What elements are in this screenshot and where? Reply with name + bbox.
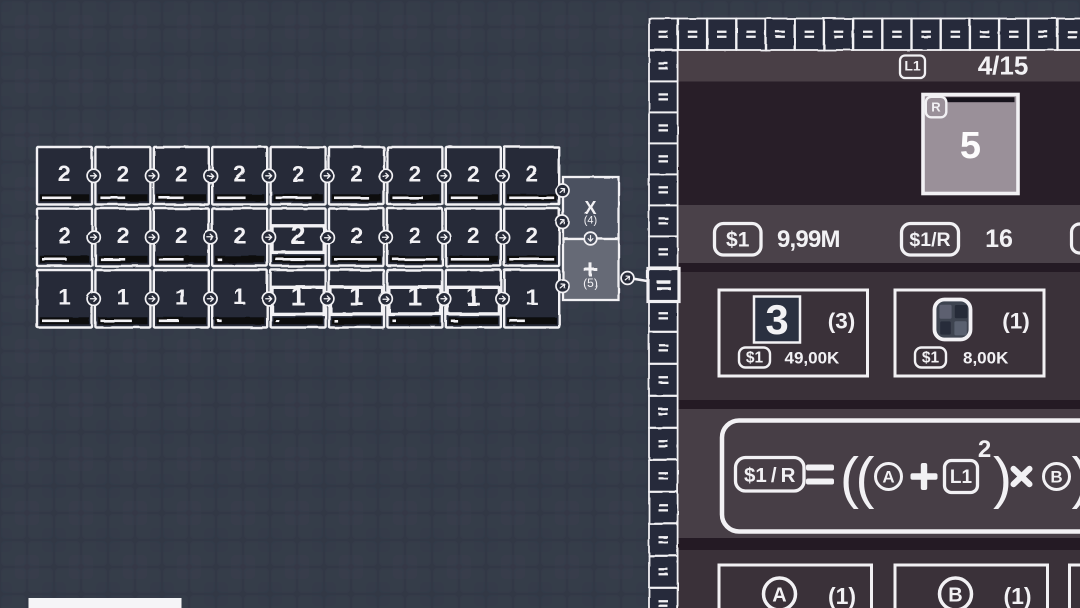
svg-text:2: 2 [117, 162, 130, 187]
svg-text:1: 1 [466, 282, 481, 312]
svg-text:1: 1 [349, 282, 364, 312]
svg-text:1: 1 [408, 282, 423, 312]
svg-text:$1 / R: $1 / R [744, 464, 796, 487]
svg-text:2: 2 [175, 223, 188, 248]
svg-text:((: (( [840, 446, 874, 510]
svg-text:2: 2 [291, 220, 306, 250]
svg-text:1: 1 [117, 285, 130, 310]
svg-text:2: 2 [409, 162, 422, 187]
svg-text:L1: L1 [904, 58, 921, 74]
svg-text:A: A [882, 468, 894, 487]
svg-text:(1): (1) [828, 583, 856, 608]
svg-text:$1: $1 [922, 350, 940, 367]
svg-text:2: 2 [58, 223, 71, 248]
svg-text:(1): (1) [1003, 583, 1031, 608]
svg-text:B: B [1050, 468, 1062, 487]
svg-text:2: 2 [467, 162, 480, 187]
svg-text:R: R [931, 100, 941, 115]
svg-text:2: 2 [292, 162, 305, 187]
svg-text:2: 2 [978, 436, 991, 463]
svg-text:$1: $1 [726, 229, 750, 252]
svg-text:8,00K: 8,00K [963, 349, 1009, 368]
svg-text:2: 2 [175, 162, 188, 187]
svg-text:2: 2 [525, 223, 538, 248]
svg-text:(1): (1) [1002, 309, 1030, 334]
svg-text:A: A [772, 585, 786, 607]
svg-text:2: 2 [233, 223, 246, 248]
svg-text:1: 1 [175, 285, 188, 310]
svg-text:(3): (3) [828, 309, 856, 334]
svg-text:(4): (4) [584, 215, 597, 227]
svg-text:): ) [1072, 446, 1080, 510]
svg-text:16: 16 [985, 225, 1013, 253]
svg-text:2: 2 [233, 162, 246, 187]
svg-text:3: 3 [765, 296, 788, 343]
svg-text:2: 2 [467, 223, 480, 248]
svg-text:(5): (5) [583, 276, 598, 290]
svg-text:49,00K: 49,00K [785, 349, 841, 368]
svg-text:): ) [993, 446, 1012, 510]
svg-text:B: B [948, 585, 962, 607]
svg-text:L1: L1 [950, 467, 973, 488]
svg-text:2: 2 [117, 223, 130, 248]
svg-text:2: 2 [409, 223, 422, 248]
svg-text:9,99M: 9,99M [777, 226, 840, 253]
svg-text:$1/R: $1/R [909, 229, 950, 251]
svg-text:1: 1 [291, 282, 306, 312]
svg-text:2: 2 [525, 162, 538, 187]
svg-text:2: 2 [350, 223, 363, 248]
svg-text:2: 2 [58, 162, 71, 187]
svg-text:1: 1 [525, 285, 538, 310]
svg-text:1: 1 [58, 285, 71, 310]
svg-text:4/15: 4/15 [978, 51, 1029, 81]
svg-text:5: 5 [960, 125, 981, 167]
svg-text:1: 1 [233, 285, 246, 310]
svg-text:2: 2 [350, 162, 363, 187]
svg-text:$1: $1 [746, 350, 764, 367]
